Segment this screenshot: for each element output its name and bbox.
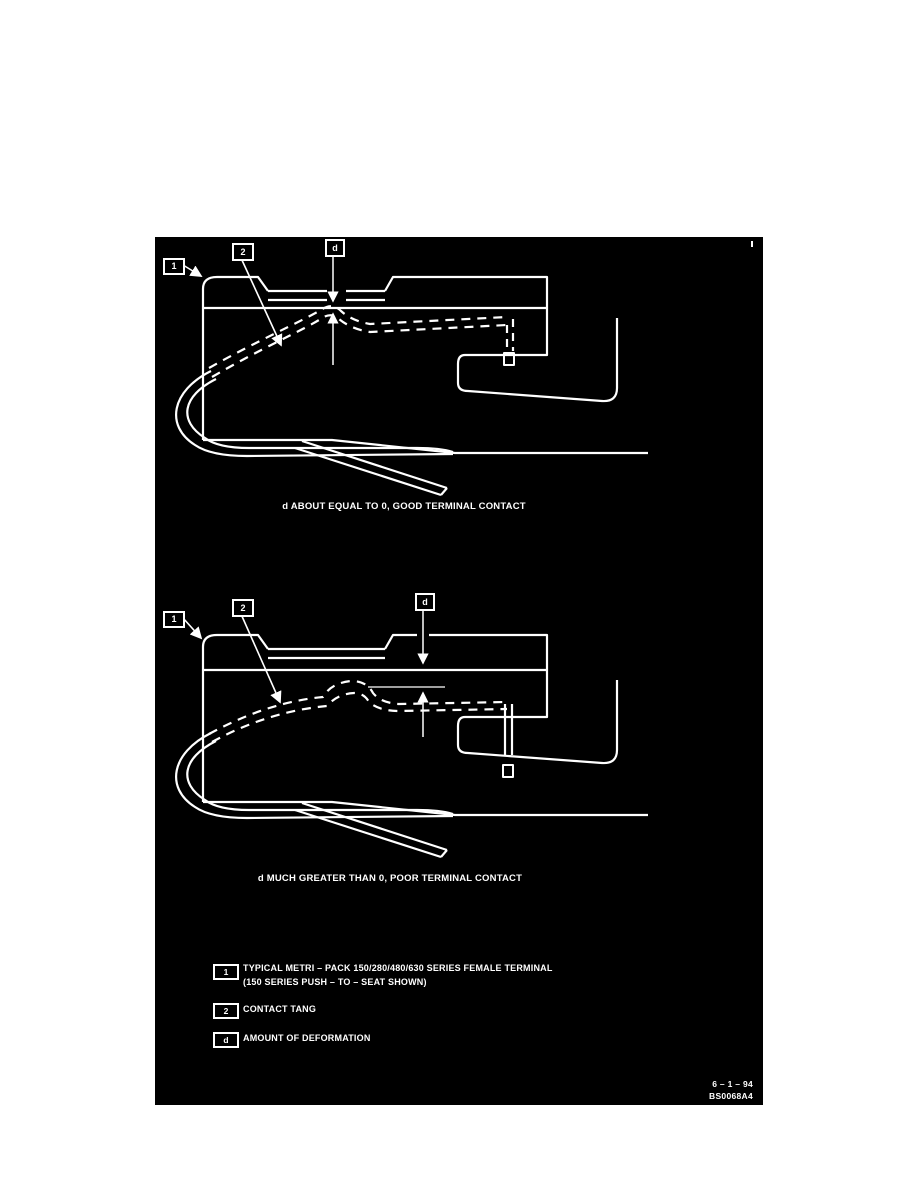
- contact-tang-dashed-bottom: [212, 315, 507, 377]
- callout-1-arrow: [183, 618, 201, 638]
- lock-tang-hook: [458, 318, 617, 401]
- figure-date: 6 – 1 – 94: [709, 1078, 753, 1090]
- contact-tang-dashed-top: [209, 681, 507, 734]
- tang-end-tab: [503, 765, 513, 777]
- legend-item-terminal-line1: TYPICAL METRI – PACK 150/280/480/630 SER…: [243, 961, 553, 975]
- callout-box-deformation: d: [415, 593, 435, 611]
- legend-item-terminal-line2: (150 SERIES PUSH – TO – SEAT SHOWN): [243, 975, 553, 989]
- body-bottom-edge: [203, 802, 648, 815]
- legend-key-d: d: [213, 1032, 239, 1048]
- figure-panel: 1 2 d 1 2 d d ABOUT EQUAL TO 0, GOOD TER…: [155, 237, 763, 1105]
- callout-box-terminal: 1: [163, 258, 185, 275]
- callout-2-arrow: [241, 258, 281, 345]
- body-bottom-edge: [203, 440, 648, 453]
- caption-poor-contact: d MUCH GREATER THAN 0, POOR TERMINAL CON…: [257, 873, 523, 884]
- callout-box-contact-tang: 2: [232, 243, 254, 261]
- contact-tang-dashed-top: [209, 306, 507, 368]
- callout-arrows-good: [183, 258, 281, 345]
- figure-footer: 6 – 1 – 94 BS0068A4: [709, 1078, 753, 1102]
- callout-1-arrow: [183, 265, 201, 276]
- callout-box-deformation: d: [325, 239, 345, 257]
- legend-key-2: 2: [213, 1003, 239, 1019]
- manual-page: { "colors": { "page_bg": "#ffffff", "pan…: [0, 0, 918, 1188]
- diagram-good-contact: [176, 253, 648, 495]
- callout-box-contact-tang: 2: [232, 599, 254, 617]
- terminal-body-outline: [203, 635, 547, 802]
- legend-item-contact-tang: CONTACT TANG: [243, 1002, 316, 1016]
- terminal-body-outline: [203, 277, 547, 440]
- lock-tang-hook: [458, 680, 617, 763]
- figure-code: BS0068A4: [709, 1090, 753, 1102]
- tang-end-dashed-vertical: [507, 319, 513, 351]
- diagram-poor-contact: [176, 607, 648, 857]
- callout-arrows-poor: [183, 614, 280, 702]
- legend-key-1: 1: [213, 964, 239, 980]
- caption-good-contact: d ABOUT EQUAL TO 0, GOOD TERMINAL CONTAC…: [273, 501, 535, 512]
- legend-item-terminal: TYPICAL METRI – PACK 150/280/480/630 SER…: [243, 961, 553, 989]
- legend-item-deformation: AMOUNT OF DEFORMATION: [243, 1031, 371, 1045]
- callout-box-terminal: 1: [163, 611, 185, 628]
- tang-end-vertical: [505, 704, 512, 755]
